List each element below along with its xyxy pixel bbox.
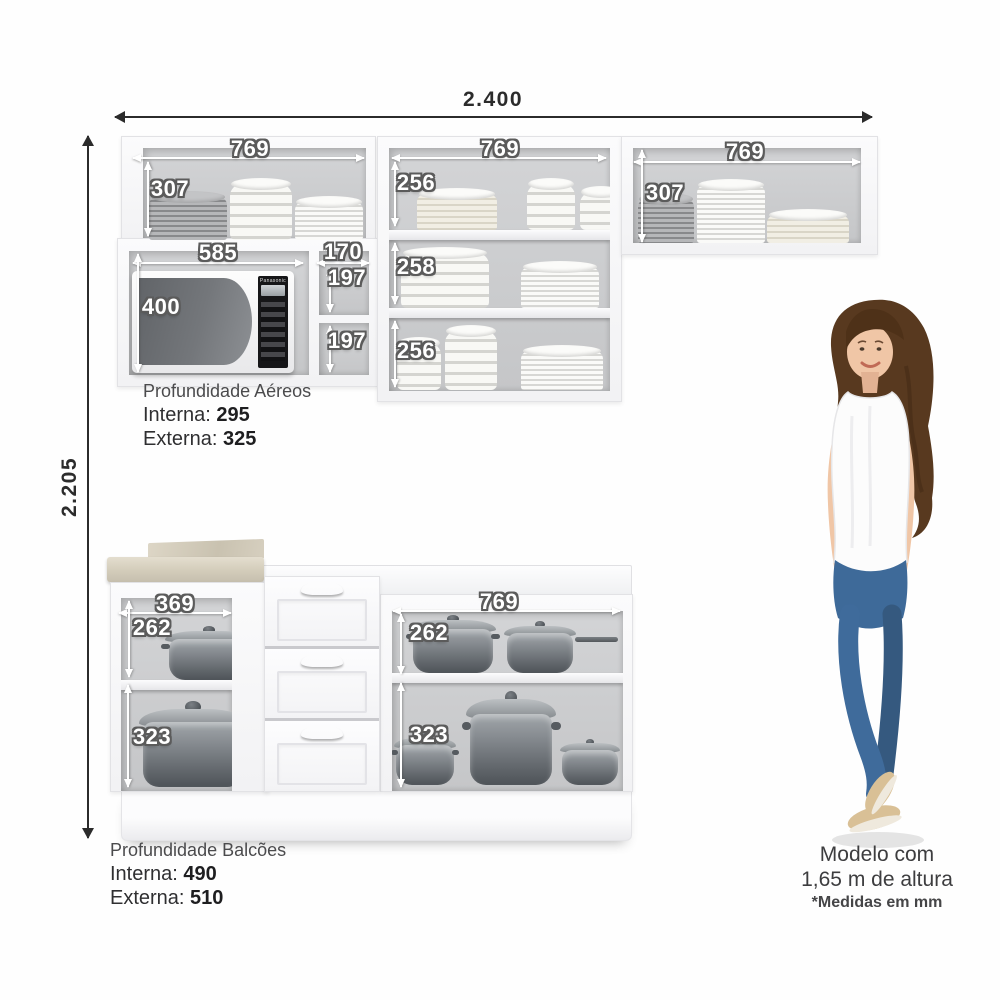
shelf bbox=[389, 230, 610, 240]
dim-label: 256 bbox=[397, 170, 435, 196]
model-caption: Modelo com 1,65 m de altura *Medidas em … bbox=[793, 842, 961, 914]
shelf bbox=[392, 673, 623, 683]
plate-stack bbox=[697, 185, 765, 243]
measurement-unit-note: *Medidas em mm bbox=[793, 892, 961, 914]
plate-stack bbox=[521, 267, 599, 308]
drawer-3 bbox=[265, 721, 379, 789]
bowl-stack bbox=[230, 184, 292, 240]
caption-value: 510 bbox=[190, 887, 223, 909]
dim-label: 262 bbox=[410, 620, 448, 646]
lidded-pan bbox=[560, 739, 620, 785]
countertop-marble bbox=[107, 557, 264, 582]
overall-height-label: 2.205 bbox=[58, 457, 82, 517]
bowl-stack bbox=[580, 192, 610, 230]
caption-value: 295 bbox=[216, 404, 249, 426]
drawer-panel bbox=[277, 743, 367, 785]
dim-arrow bbox=[137, 254, 139, 372]
model-caption-line2: 1,65 m de altura bbox=[793, 867, 961, 892]
dim-label: 256 bbox=[397, 338, 435, 364]
dim-label: 769 bbox=[231, 136, 269, 162]
caption-line: Interna: 490 bbox=[110, 862, 286, 886]
product-dimension-diagram: 2.400 2.205 769 307 Panasonic 585 170 40… bbox=[0, 0, 1000, 1000]
drawer-handle bbox=[301, 726, 343, 739]
drawer-panel bbox=[277, 671, 367, 713]
upper-depth-caption: Profundidade Aéreos Interna: 295 Externa… bbox=[143, 379, 311, 451]
dim-arrow bbox=[394, 243, 396, 304]
dim-label: 197 bbox=[328, 265, 366, 291]
dim-label: 769 bbox=[726, 139, 764, 165]
microwave: Panasonic bbox=[132, 271, 294, 373]
plate-stack bbox=[149, 197, 227, 240]
dim-label: 258 bbox=[397, 254, 435, 280]
dim-arrow bbox=[394, 321, 396, 387]
caption-label: Interna: bbox=[143, 404, 211, 426]
caption-title: Profundidade Aéreos bbox=[143, 379, 311, 403]
plate-stack bbox=[295, 202, 363, 240]
dim-label: 369 bbox=[156, 591, 194, 617]
drawer-1 bbox=[265, 577, 379, 649]
caption-label: Externa: bbox=[110, 887, 184, 909]
dim-label: 769 bbox=[481, 136, 519, 162]
dim-label: 323 bbox=[133, 724, 171, 750]
dim-label: 769 bbox=[480, 589, 518, 615]
plate-stack bbox=[417, 194, 497, 230]
overall-height-arrow bbox=[87, 136, 89, 838]
dim-arrow bbox=[147, 162, 149, 236]
dim-label: 585 bbox=[199, 240, 237, 266]
microwave-brand: Panasonic bbox=[258, 278, 289, 284]
plate-stack bbox=[767, 215, 849, 243]
plate-stack bbox=[521, 351, 603, 390]
caption-line: Externa: 325 bbox=[143, 427, 311, 451]
dim-label: 400 bbox=[142, 294, 180, 320]
pot bbox=[466, 691, 556, 785]
dim-arrow bbox=[127, 685, 129, 787]
caption-value: 490 bbox=[183, 863, 216, 885]
drawer-handle bbox=[301, 582, 343, 595]
dim-arrow bbox=[394, 162, 396, 226]
dim-label: 262 bbox=[133, 615, 171, 641]
saucepan bbox=[504, 621, 576, 673]
drawer-2 bbox=[265, 649, 379, 721]
bowl-stack bbox=[527, 184, 575, 230]
overall-width-label: 2.400 bbox=[463, 88, 523, 112]
model-photo bbox=[786, 296, 974, 852]
shelf bbox=[121, 680, 232, 690]
dim-arrow bbox=[400, 614, 402, 674]
bowl-stack bbox=[445, 331, 497, 390]
dim-arrow bbox=[128, 601, 130, 677]
caption-title: Profundidade Balcões bbox=[110, 838, 286, 862]
pot bbox=[165, 626, 232, 680]
dim-label: 197 bbox=[328, 328, 366, 354]
cabinet-base bbox=[121, 790, 632, 841]
dim-label: 323 bbox=[410, 722, 448, 748]
dim-label: 170 bbox=[324, 239, 362, 265]
drawer-panel bbox=[277, 599, 367, 641]
drawer-handle bbox=[301, 654, 343, 667]
shelf bbox=[389, 308, 610, 318]
microwave-buttons bbox=[261, 302, 284, 361]
model-caption-line1: Modelo com bbox=[793, 842, 961, 867]
dim-label: 307 bbox=[646, 180, 684, 206]
microwave-door bbox=[138, 278, 251, 365]
caption-label: Interna: bbox=[110, 863, 178, 885]
caption-value: 325 bbox=[223, 428, 256, 450]
caption-line: Externa: 510 bbox=[110, 886, 286, 910]
caption-line: Interna: 295 bbox=[143, 403, 311, 427]
microwave-display bbox=[261, 285, 284, 296]
microwave-control-panel: Panasonic bbox=[258, 276, 289, 368]
overall-width-arrow bbox=[115, 116, 872, 118]
lower-depth-caption: Profundidade Balcões Interna: 490 Extern… bbox=[110, 838, 286, 910]
caption-label: Externa: bbox=[143, 428, 217, 450]
dim-label: 307 bbox=[151, 176, 189, 202]
drawer-unit bbox=[264, 576, 380, 792]
dim-arrow bbox=[641, 150, 643, 242]
dim-arrow bbox=[400, 683, 402, 787]
